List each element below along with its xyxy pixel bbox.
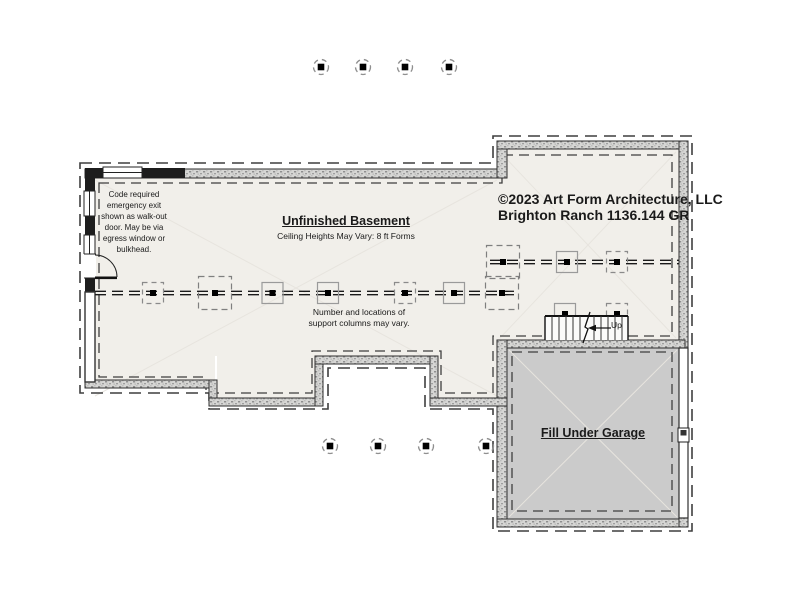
wall-notch-top: [315, 356, 438, 364]
floor-plan-drawing: [0, 0, 800, 599]
wall-bottom-mid: [209, 398, 323, 406]
stairs-up-label: Up: [611, 320, 622, 330]
plan-name-line: Brighton Ranch 1136.144 GR: [498, 207, 689, 223]
wall-left-lower: [85, 292, 95, 382]
support-columns-note: Number and locations of support columns …: [290, 307, 428, 328]
wall-garage-bottom: [497, 519, 688, 527]
basement-floor-plan: Code required emergency exit shown as wa…: [0, 0, 800, 599]
room-title: Unfinished Basement: [246, 214, 446, 228]
wall-top-extension: [497, 141, 688, 149]
wall-bottom-left: [85, 380, 213, 388]
garage-wall-vent-icon: [678, 428, 689, 442]
wall-garage-left: [497, 340, 507, 527]
room-subtitle: Ceiling Heights May Vary: 8 ft Forms: [246, 231, 446, 241]
wall-right-extension: [679, 141, 688, 348]
garage-label: Fill Under Garage: [508, 426, 678, 440]
wall-bottom-right: [430, 398, 507, 406]
window-top-icon: [103, 167, 142, 178]
egress-note: Code required emergency exit shown as wa…: [86, 189, 182, 255]
copyright-line: ©2023 Art Form Architecture, LLC: [498, 191, 723, 207]
wall-garage-top: [507, 340, 685, 348]
